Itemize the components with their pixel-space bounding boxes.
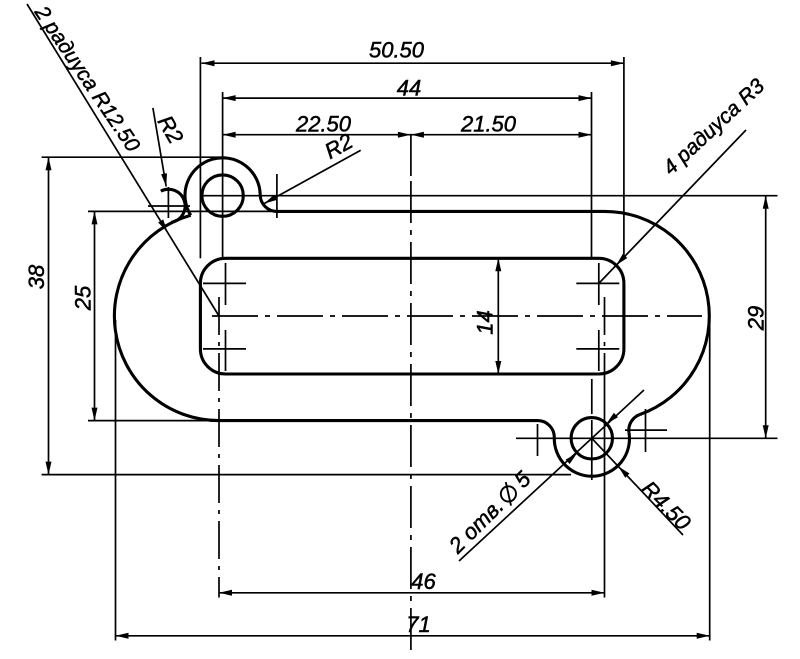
svg-text:50.50: 50.50 <box>369 38 425 63</box>
svg-text:29: 29 <box>744 306 769 331</box>
svg-text:25: 25 <box>71 285 96 311</box>
svg-text:38: 38 <box>24 264 49 289</box>
svg-text:46: 46 <box>411 569 436 594</box>
svg-text:14: 14 <box>473 310 498 334</box>
svg-text:71: 71 <box>406 612 430 637</box>
svg-text:21.50: 21.50 <box>460 112 517 137</box>
svg-text:44: 44 <box>397 76 421 101</box>
